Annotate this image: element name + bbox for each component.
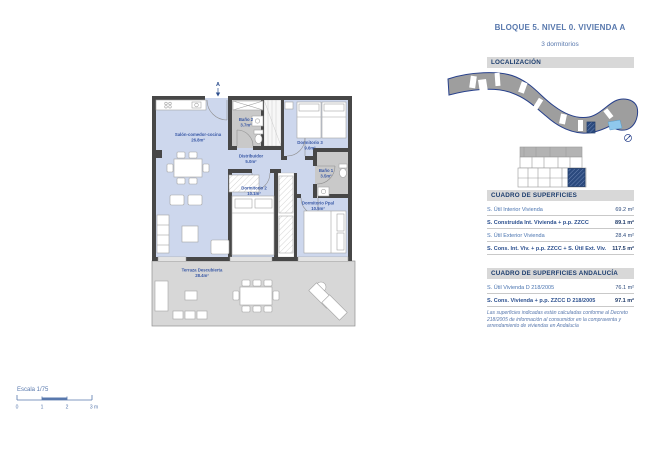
elevation-unit-highlight bbox=[568, 169, 585, 187]
section-marker-label: A bbox=[216, 82, 220, 88]
room-area-distribuidor: 5.0m² bbox=[245, 159, 257, 164]
cuadro-andalucia-table: S. Útil Vivienda D 218/2005 76.1 m² S. C… bbox=[487, 281, 634, 307]
section-marker: A bbox=[216, 82, 220, 97]
row-label: S. Construida Int. Vivienda + p.p. ZZCC bbox=[487, 220, 589, 226]
site-pool bbox=[608, 120, 622, 130]
scale-tick-3: 3 m bbox=[90, 405, 98, 411]
floorplan-sheet: { "header": { "title": "BLOQUE 5. NIVEL … bbox=[0, 0, 650, 450]
apartment-floorplan: A Salón-comedor-cocina 26.8m² Baño 2 3.7… bbox=[140, 75, 370, 335]
outdoor-sofa bbox=[155, 281, 168, 311]
tv-unit bbox=[157, 215, 169, 253]
row-value: 28.4 m² bbox=[615, 233, 634, 239]
outdoor-table bbox=[240, 287, 272, 305]
compass-icon bbox=[625, 135, 632, 142]
row-label: S. Útil Exterior Vivienda bbox=[487, 233, 545, 239]
armchair bbox=[188, 195, 202, 205]
row-value: 117.5 m² bbox=[612, 246, 634, 252]
row-value: 89.1 m² bbox=[615, 220, 634, 226]
row-label: S. Útil Vivienda D 218/2005 bbox=[487, 285, 554, 291]
row-value: 76.1 m² bbox=[615, 285, 634, 291]
scale-bar: Escala 1/75 0 1 2 3 m bbox=[14, 383, 124, 415]
room-label-salon: Salón-comedor-cocina bbox=[175, 132, 222, 137]
room-label-terraza: Terraza Descubierta bbox=[182, 268, 223, 273]
room-label-distribuidor: Distribuidor bbox=[239, 154, 264, 159]
row-value: 97.1 m² bbox=[615, 298, 634, 304]
scale-tick-1: 1 bbox=[41, 405, 44, 411]
utility-shaft bbox=[264, 100, 281, 146]
scale-tick-0: 0 bbox=[16, 405, 19, 411]
table-row: S. Cons. Int. Viv. + p.p. ZZCC + S. Útil… bbox=[487, 242, 634, 255]
table-row: S. Útil Exterior Vivienda 28.4 m² bbox=[487, 229, 634, 242]
location-map bbox=[440, 70, 645, 190]
room-label-dorm2: Dormitorio 2 bbox=[241, 186, 267, 191]
room-area-bano1: 3.5m² bbox=[320, 174, 332, 179]
row-label: S. Cons. Int. Viv. + p.p. ZZCC + S. Útil… bbox=[487, 246, 606, 252]
room-label-dorm3: Dormitorio 3 bbox=[297, 140, 323, 145]
scale-tick-2: 2 bbox=[66, 405, 69, 411]
room-area-dorm2: 10.1m² bbox=[247, 191, 261, 196]
localizacion-heading: LOCALIZACIÓN bbox=[487, 57, 634, 68]
scale-label: Escala 1/75 bbox=[17, 387, 49, 393]
block-elevation bbox=[518, 147, 586, 187]
cuadro-superficies-heading: CUADRO DE SUPERFICIES bbox=[487, 190, 634, 201]
sink bbox=[252, 116, 263, 126]
room-label-ppal: Dormitorio Ppal bbox=[302, 201, 334, 206]
sofa bbox=[211, 240, 229, 254]
hall-closet-column bbox=[278, 173, 294, 257]
table-row: S. Útil Interior Vivienda 69.2 m² bbox=[487, 203, 634, 216]
room-label-bano2: Baño 2 bbox=[239, 117, 254, 122]
armchair bbox=[170, 195, 184, 205]
site-block-marker bbox=[587, 122, 595, 133]
room-area-bano2: 3.7m² bbox=[240, 123, 252, 128]
table-row: S. Útil Vivienda D 218/2005 76.1 m² bbox=[487, 281, 634, 294]
dining-table bbox=[174, 159, 202, 177]
cuadro-superficies-table: S. Útil Interior Vivienda 69.2 m² S. Con… bbox=[487, 203, 634, 255]
room-area-dorm3: 9.6m² bbox=[304, 146, 316, 151]
table-row: S. Cons. Vivienda + p.p. ZZCC D 218/2005… bbox=[487, 294, 634, 307]
decree-footnote: Las superficies indicadas están calculad… bbox=[487, 310, 634, 330]
row-label: S. Cons. Vivienda + p.p. ZZCC D 218/2005 bbox=[487, 298, 595, 304]
coffee-table bbox=[182, 226, 198, 242]
cuadro-andalucia-heading: CUADRO DE SUPERFICIES ANDALUCÍA bbox=[487, 268, 634, 279]
page-title: BLOQUE 5. NIVEL 0. VIVIENDA A bbox=[470, 23, 650, 32]
row-label: S. Útil Interior Vivienda bbox=[487, 207, 543, 213]
row-value: 69.2 m² bbox=[615, 207, 634, 213]
room-area-terraza: 28.4m² bbox=[195, 273, 209, 278]
room-area-salon: 26.8m² bbox=[191, 138, 205, 143]
room-area-ppal: 10.5m² bbox=[311, 206, 325, 211]
toilet bbox=[255, 135, 262, 144]
nightstand bbox=[285, 102, 293, 109]
room-label-bano1: Baño 1 bbox=[319, 168, 334, 173]
toilet-tank bbox=[254, 130, 263, 134]
page-subtitle: 3 dormitorios bbox=[470, 41, 650, 48]
table-row: S. Construida Int. Vivienda + p.p. ZZCC … bbox=[487, 216, 634, 229]
